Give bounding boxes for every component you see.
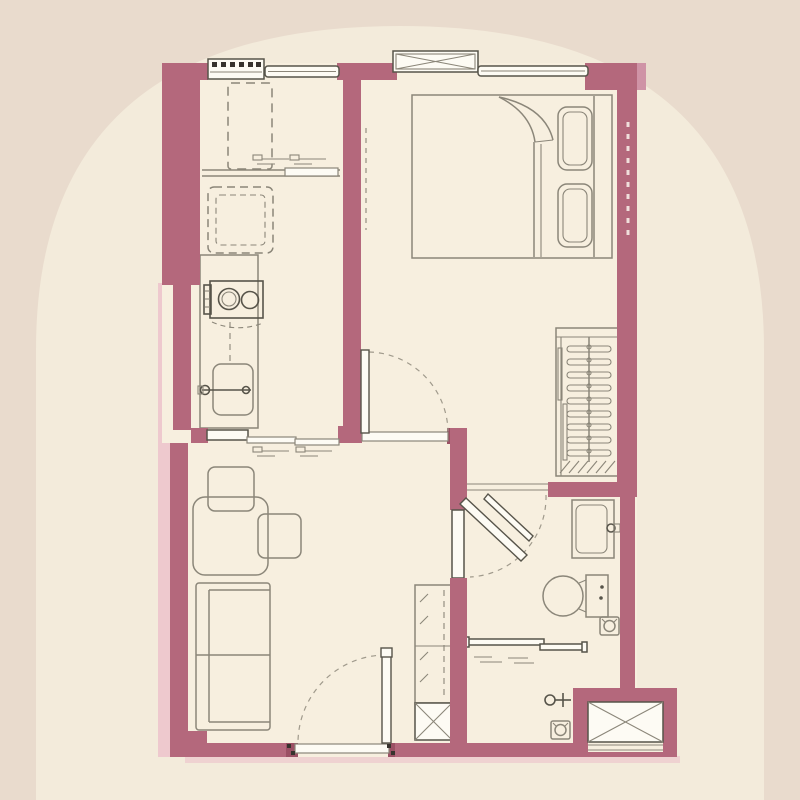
service-shaft	[415, 703, 452, 740]
wall-left-mid	[173, 283, 191, 430]
wall-partition-bedroom-stub	[338, 426, 362, 443]
wall-bath-top	[548, 482, 637, 497]
wall-left-thick	[162, 63, 200, 285]
wall-corner-cap-light	[637, 63, 646, 90]
entry-threshold	[287, 744, 395, 755]
wall-hall-bath-upper	[450, 428, 467, 510]
kitchen-window	[265, 66, 339, 77]
floor-plan-svg	[0, 0, 800, 800]
unit-floor	[162, 63, 677, 757]
wall-ledge-left	[573, 688, 588, 757]
wall-ledge-top	[573, 688, 677, 702]
floor-plan-canvas	[0, 0, 800, 800]
wall-right-upper	[617, 80, 637, 497]
wall-ledge-bottom-strip	[588, 752, 663, 757]
ac-ledge-box-bottom-right	[588, 702, 663, 742]
wall-interior-bedroom	[343, 63, 361, 430]
bedroom-window	[478, 66, 588, 76]
kitchen-ledge-hatch-window	[208, 59, 264, 79]
wall-bath-thin-partition	[452, 510, 464, 578]
wall-bottom-mid	[395, 743, 575, 757]
wall-bottom-left	[200, 743, 292, 757]
wall-hall-bath-lower	[450, 578, 467, 757]
wall-left-lower	[170, 443, 188, 745]
pink-glow-bottom	[185, 756, 680, 763]
bedroom-door-threshold	[362, 432, 448, 441]
wall-partition-left-stub	[191, 428, 208, 443]
ac-condenser-ledge-box	[393, 51, 478, 72]
wall-ledge-right	[663, 688, 677, 757]
wall-right-bath	[620, 497, 635, 688]
